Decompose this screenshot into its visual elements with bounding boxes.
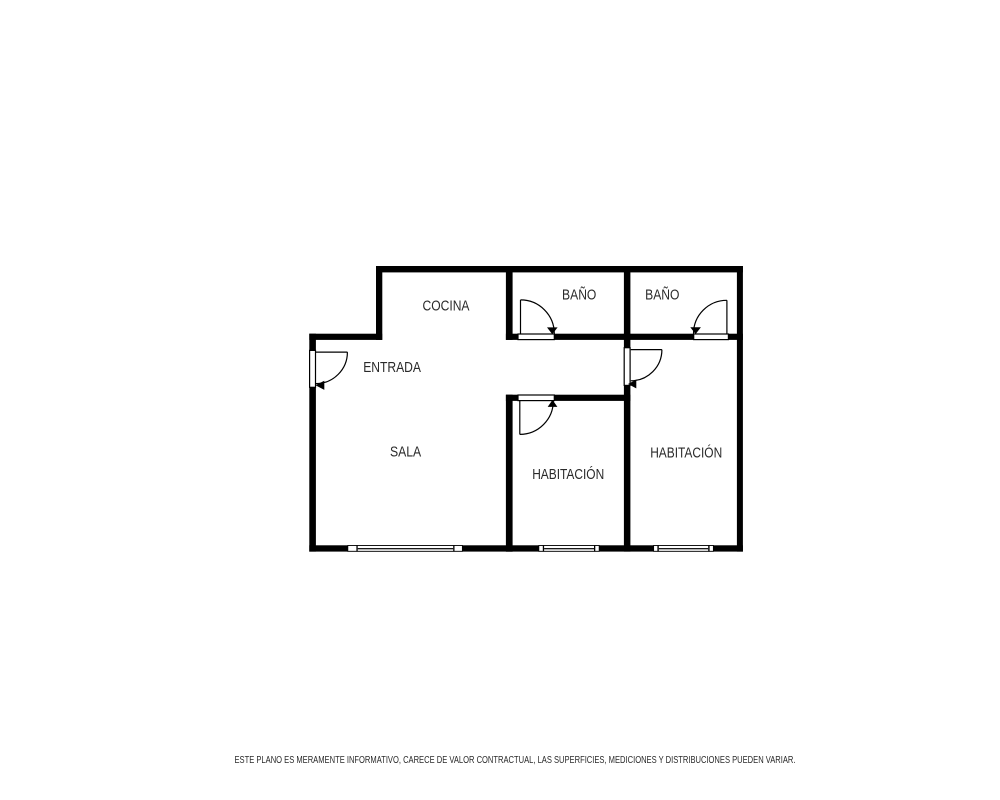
svg-text:HABITACIÓN: HABITACIÓN	[650, 444, 722, 461]
svg-text:HABITACIÓN: HABITACIÓN	[532, 466, 604, 483]
svg-text:ENTRADA: ENTRADA	[363, 359, 421, 376]
svg-text:BAÑO: BAÑO	[562, 286, 596, 303]
svg-text:BAÑO: BAÑO	[645, 286, 679, 303]
svg-text:SALA: SALA	[390, 444, 422, 461]
svg-text:ESTE PLANO ES MERAMENTE INFORM: ESTE PLANO ES MERAMENTE INFORMATIVO, CAR…	[235, 755, 796, 766]
svg-text:COCINA: COCINA	[423, 298, 471, 315]
